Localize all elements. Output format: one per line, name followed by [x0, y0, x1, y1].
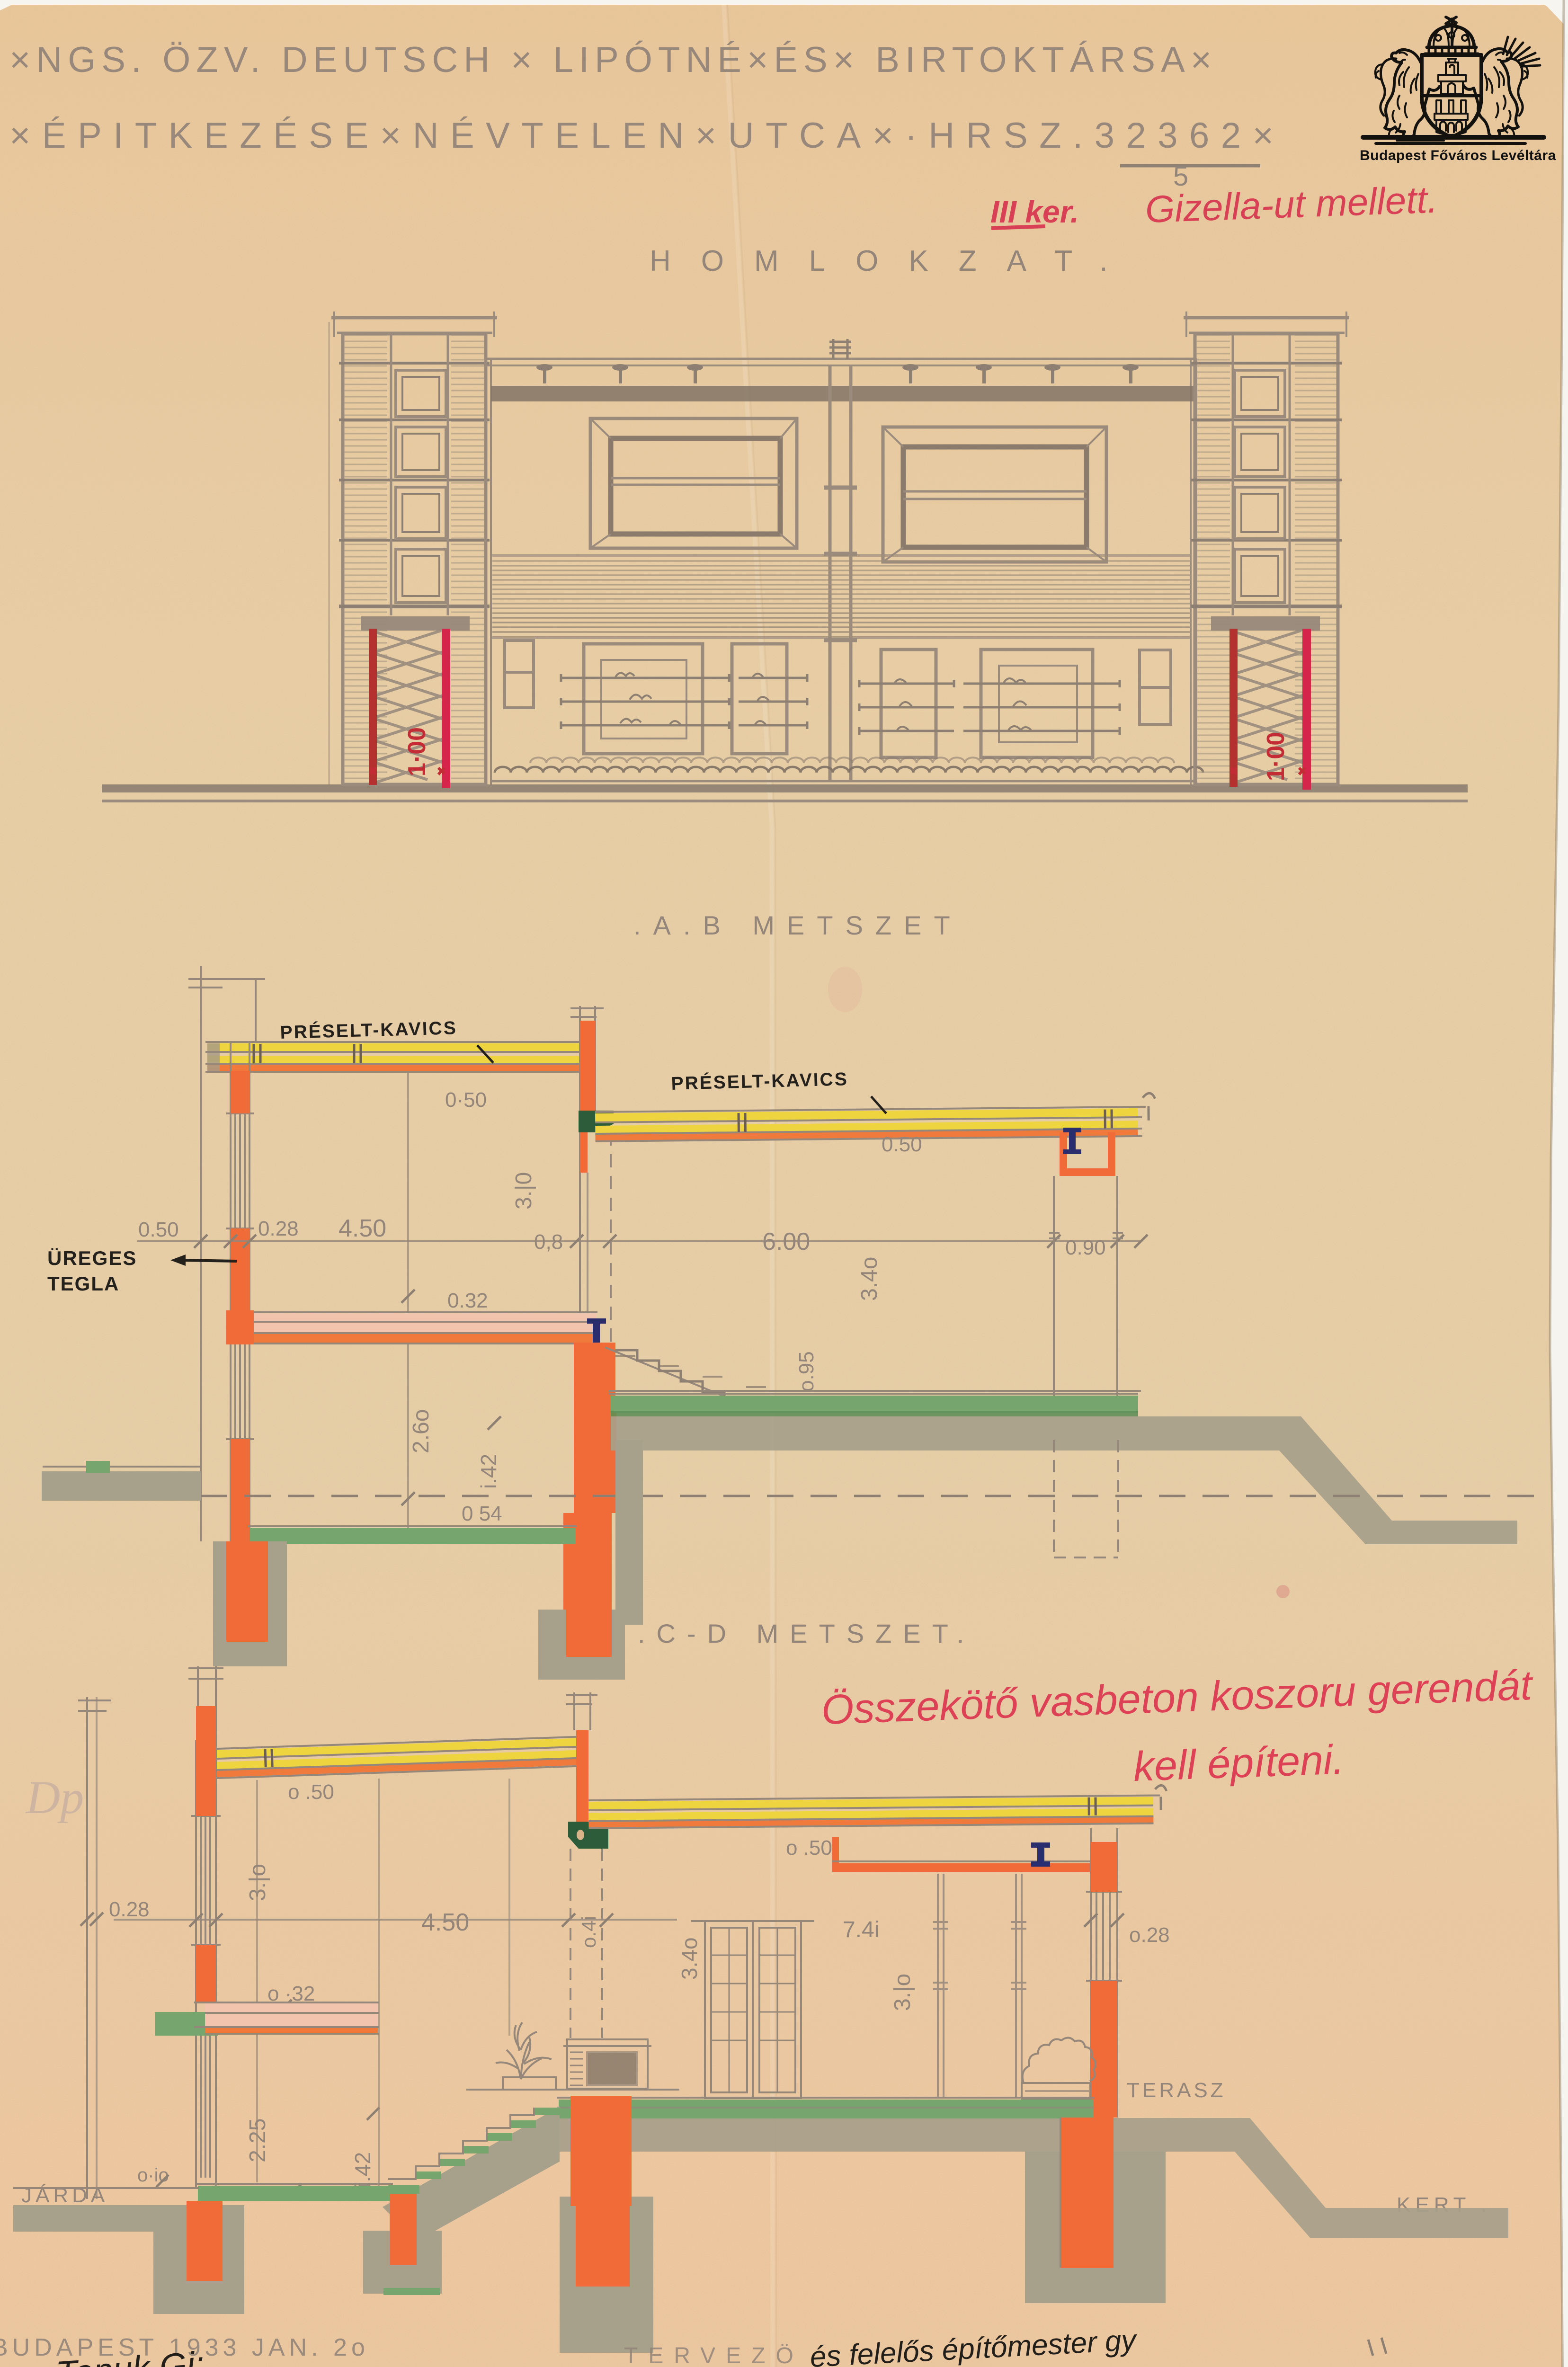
svg-text:TEGLA: TEGLA: [47, 1272, 119, 1295]
svg-text:2.6o: 2.6o: [409, 1409, 434, 1453]
svg-text:III ker.: III ker.: [990, 194, 1079, 229]
svg-text:0 54: 0 54: [462, 1502, 502, 1525]
svg-text:3.4o: 3.4o: [857, 1257, 882, 1301]
svg-text:o.28: o.28: [1129, 1923, 1170, 1947]
svg-text:kell építeni.: kell építeni.: [1132, 1736, 1345, 1790]
svg-text:o·io: o·io: [137, 2165, 169, 2186]
svg-text:Dp: Dp: [25, 1771, 84, 1824]
svg-text:TERASZ: TERASZ: [1127, 2079, 1226, 2102]
svg-text:.A.B METSZET: .A.B METSZET: [633, 910, 962, 940]
svg-text:0.50: 0.50: [138, 1218, 179, 1241]
svg-text:×ÉPITKEZÉSE×NÉVTELEN×UTCA×·HRS: ×ÉPITKEZÉSE×NÉVTELEN×UTCA×·HRSZ.32362×: [9, 116, 1285, 156]
svg-text:0.90: 0.90: [1065, 1236, 1106, 1259]
svg-text:6.00: 6.00: [762, 1228, 810, 1255]
svg-text:1·00: 1·00: [403, 727, 431, 776]
svg-text:0.28: 0.28: [258, 1217, 299, 1240]
svg-text:HOMLOKZAT.: HOMLOKZAT.: [650, 245, 1138, 277]
svg-text:0·50: 0·50: [445, 1088, 487, 1112]
svg-text:Budapest Főváros Levéltára: Budapest Főváros Levéltára: [1360, 148, 1556, 163]
svg-text:o .50: o .50: [288, 1780, 334, 1804]
svg-text:×NGS. ÖZV. DEUTSCH × LIPÓTNÉ×É: ×NGS. ÖZV. DEUTSCH × LIPÓTNÉ×ÉS× BIRTOKT…: [9, 40, 1217, 80]
svg-text:4.50: 4.50: [421, 1909, 469, 1936]
svg-text:0,8: 0,8: [534, 1230, 563, 1254]
svg-text:.C-D METSZET.: .C-D METSZET.: [638, 1619, 975, 1648]
svg-text:0.50: 0.50: [882, 1133, 922, 1156]
svg-text:3.|0: 3.|0: [511, 1172, 536, 1210]
svg-text:0.28: 0.28: [109, 1898, 150, 1921]
svg-text:ÜREGES: ÜREGES: [47, 1247, 137, 1269]
svg-text:3.4o: 3.4o: [677, 1937, 702, 1980]
svg-text:i.42: i.42: [350, 2152, 375, 2187]
svg-text:1·00: 1·00: [1262, 732, 1290, 781]
svg-text:3.|o: 3.|o: [890, 1974, 915, 2011]
svg-text:4.50: 4.50: [339, 1215, 386, 1242]
svg-text:o.95: o.95: [795, 1351, 818, 1392]
svg-text:0.32: 0.32: [447, 1289, 488, 1312]
svg-text:o .50: o .50: [786, 1836, 832, 1860]
svg-text:o.4i: o.4i: [578, 1916, 600, 1948]
svg-text:i.42: i.42: [476, 1454, 501, 1489]
svg-text:TERVEZÖ: TERVEZÖ: [624, 2343, 804, 2367]
svg-text:7.4i: 7.4i: [843, 1917, 879, 1942]
